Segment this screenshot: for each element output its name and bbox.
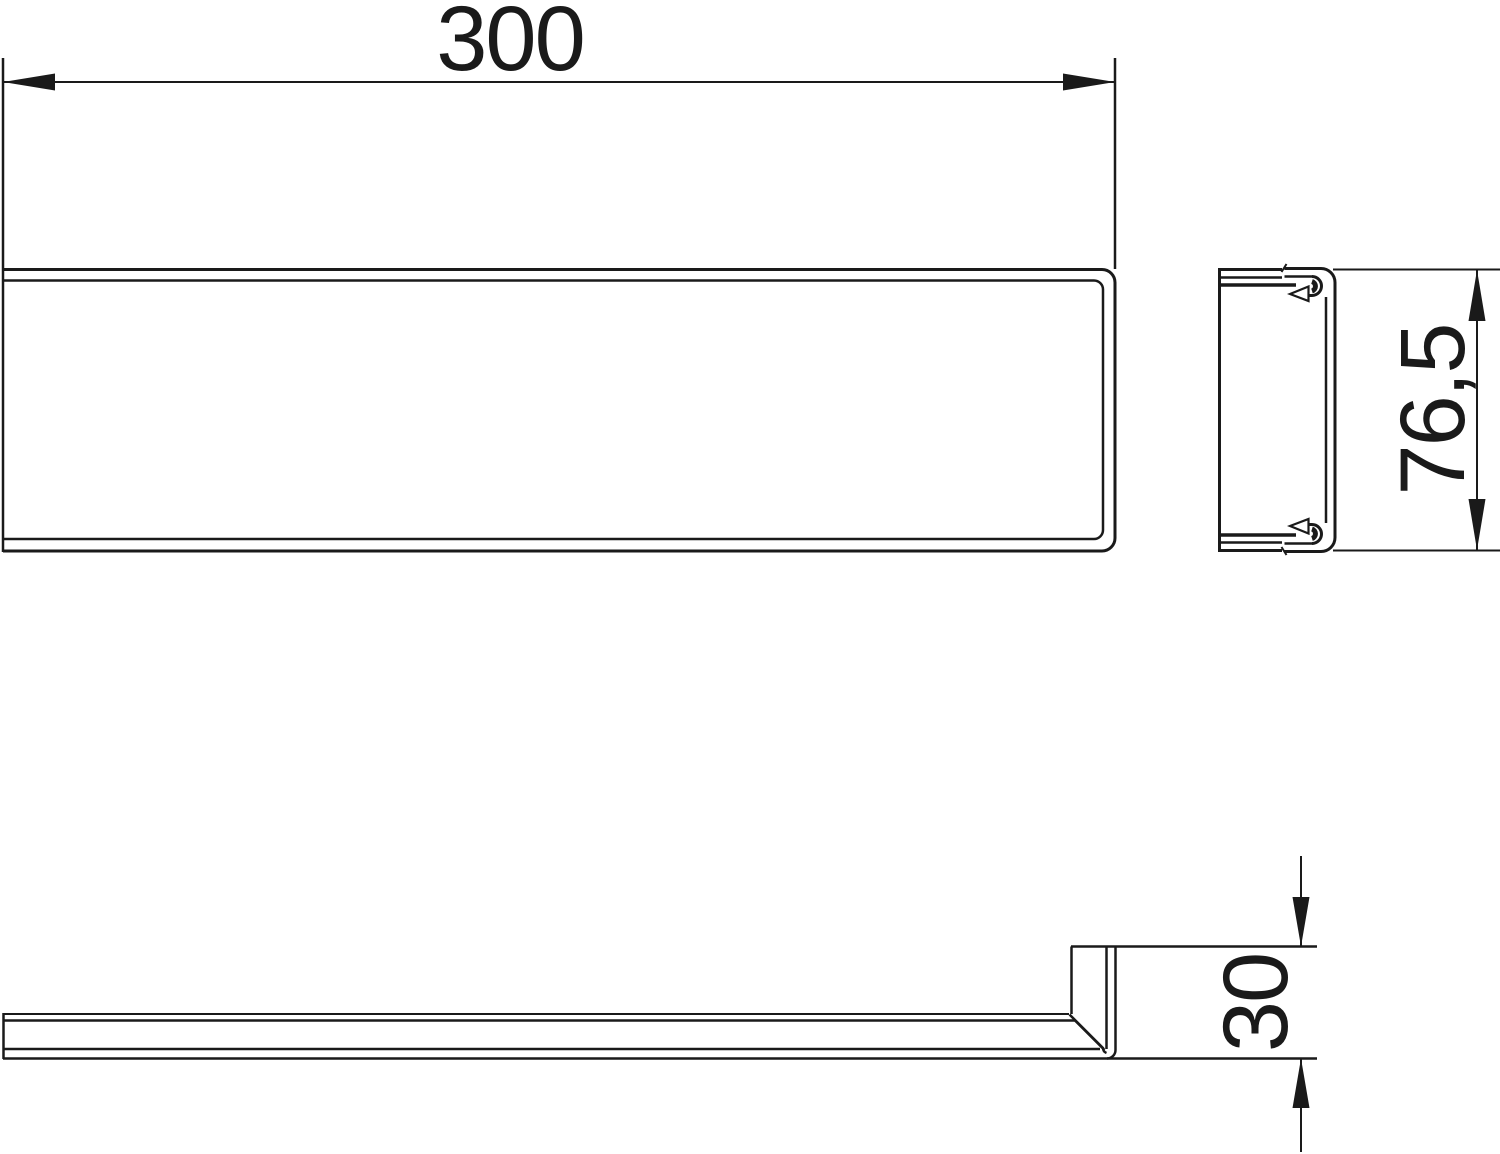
profile-top-outer-right	[1285, 269, 1336, 552]
profile-bottom-barb	[1290, 519, 1309, 534]
profile-top-hook-fill	[1312, 282, 1315, 292]
front-outer-outline	[3, 270, 1115, 552]
bend-diagonal-inner	[1075, 1021, 1105, 1051]
front-inner-outline	[3, 281, 1103, 540]
length-arrowhead-right-icon	[1063, 74, 1115, 91]
dimension-height-label: 76,5	[1382, 324, 1484, 495]
upturn-corner	[1107, 947, 1116, 1059]
height-arrowhead-top-icon	[1469, 270, 1486, 321]
profile-bottom-hook-fill	[1312, 529, 1315, 539]
dimension-length-label: 300	[436, 0, 584, 90]
side-profile-view	[1218, 264, 1335, 555]
bottom-view	[3, 947, 1317, 1060]
dimension-depth-label: 30	[1205, 954, 1307, 1052]
profile-top-mid-line	[1218, 277, 1312, 278]
dimension-depth: 30	[1205, 856, 1310, 1152]
profile-top-barb	[1290, 287, 1309, 302]
dimension-height: 76,5	[1333, 270, 1500, 551]
technical-drawing-canvas: 300 76,5	[0, 0, 1500, 1154]
dimension-length: 300	[3, 0, 1115, 91]
front-view	[3, 58, 1115, 552]
depth-arrowhead-top-icon	[1293, 897, 1310, 947]
depth-arrowhead-bottom-icon	[1293, 1059, 1310, 1109]
profile-bottom-mid-line	[1218, 543, 1312, 544]
length-arrowhead-left-icon	[3, 74, 55, 91]
height-arrowhead-bottom-icon	[1469, 499, 1486, 550]
